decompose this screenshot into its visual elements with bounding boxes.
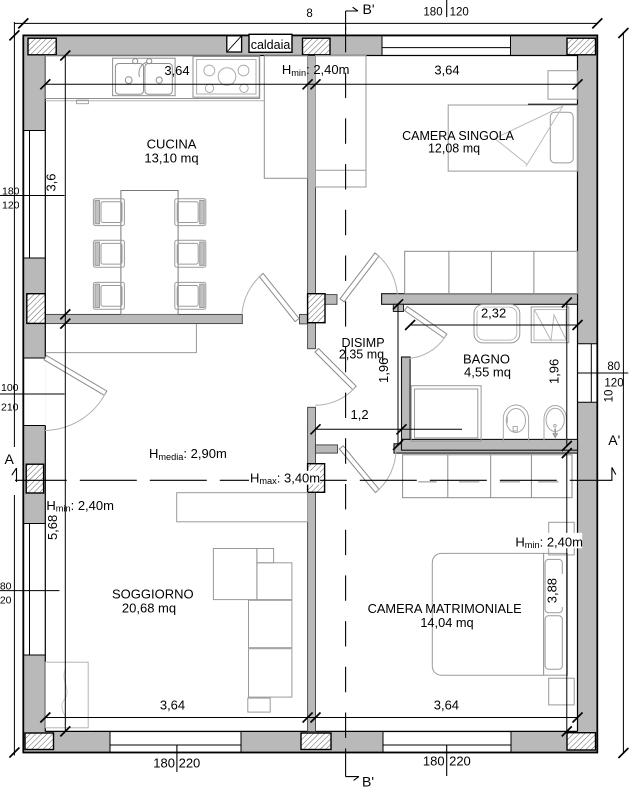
svg-text:5,68: 5,68 [45, 515, 60, 540]
svg-text:CAMERA MATRIMONIALE: CAMERA MATRIMONIALE [368, 601, 522, 616]
svg-text:100: 100 [1, 382, 19, 394]
svg-text:13,10 mq: 13,10 mq [144, 151, 198, 166]
svg-text:caldaia: caldaia [251, 38, 291, 52]
svg-text:B': B' [362, 774, 374, 790]
svg-text:CUCINA: CUCINA [147, 136, 197, 151]
svg-text:180: 180 [423, 754, 445, 769]
svg-text:3,64: 3,64 [160, 698, 185, 713]
svg-text:120: 120 [450, 7, 469, 19]
svg-text:3,64: 3,64 [164, 63, 189, 78]
svg-text:4,55 mq: 4,55 mq [464, 365, 511, 380]
svg-text:220: 220 [0, 595, 12, 607]
svg-text:8: 8 [306, 8, 312, 20]
svg-text:3,6: 3,6 [43, 173, 58, 191]
svg-text:12,08 mq: 12,08 mq [428, 142, 480, 156]
svg-text:180: 180 [423, 7, 442, 19]
svg-text:1,2: 1,2 [351, 407, 369, 422]
svg-text:B': B' [363, 1, 375, 17]
svg-text:3,88: 3,88 [544, 578, 559, 603]
svg-text:220: 220 [179, 756, 201, 771]
svg-text:20,68 mq: 20,68 mq [122, 600, 176, 615]
svg-text:180: 180 [0, 581, 12, 593]
svg-text:14,04 mq: 14,04 mq [420, 615, 473, 630]
svg-text:2,32: 2,32 [481, 305, 506, 320]
svg-text:220: 220 [449, 754, 471, 769]
svg-text:120: 120 [604, 377, 623, 389]
svg-text:80: 80 [607, 361, 620, 373]
svg-text:3,64: 3,64 [434, 62, 459, 77]
svg-text:A: A [5, 451, 15, 467]
svg-text:3,64: 3,64 [434, 697, 459, 712]
svg-text:1,96: 1,96 [547, 359, 562, 384]
svg-text:180: 180 [2, 185, 20, 197]
svg-text:1,96: 1,96 [376, 358, 391, 383]
svg-text:210: 210 [1, 402, 19, 414]
svg-text:120: 120 [2, 199, 20, 211]
svg-text:A': A' [608, 432, 620, 448]
svg-text:180: 180 [153, 756, 175, 771]
svg-text:10: 10 [604, 390, 616, 403]
